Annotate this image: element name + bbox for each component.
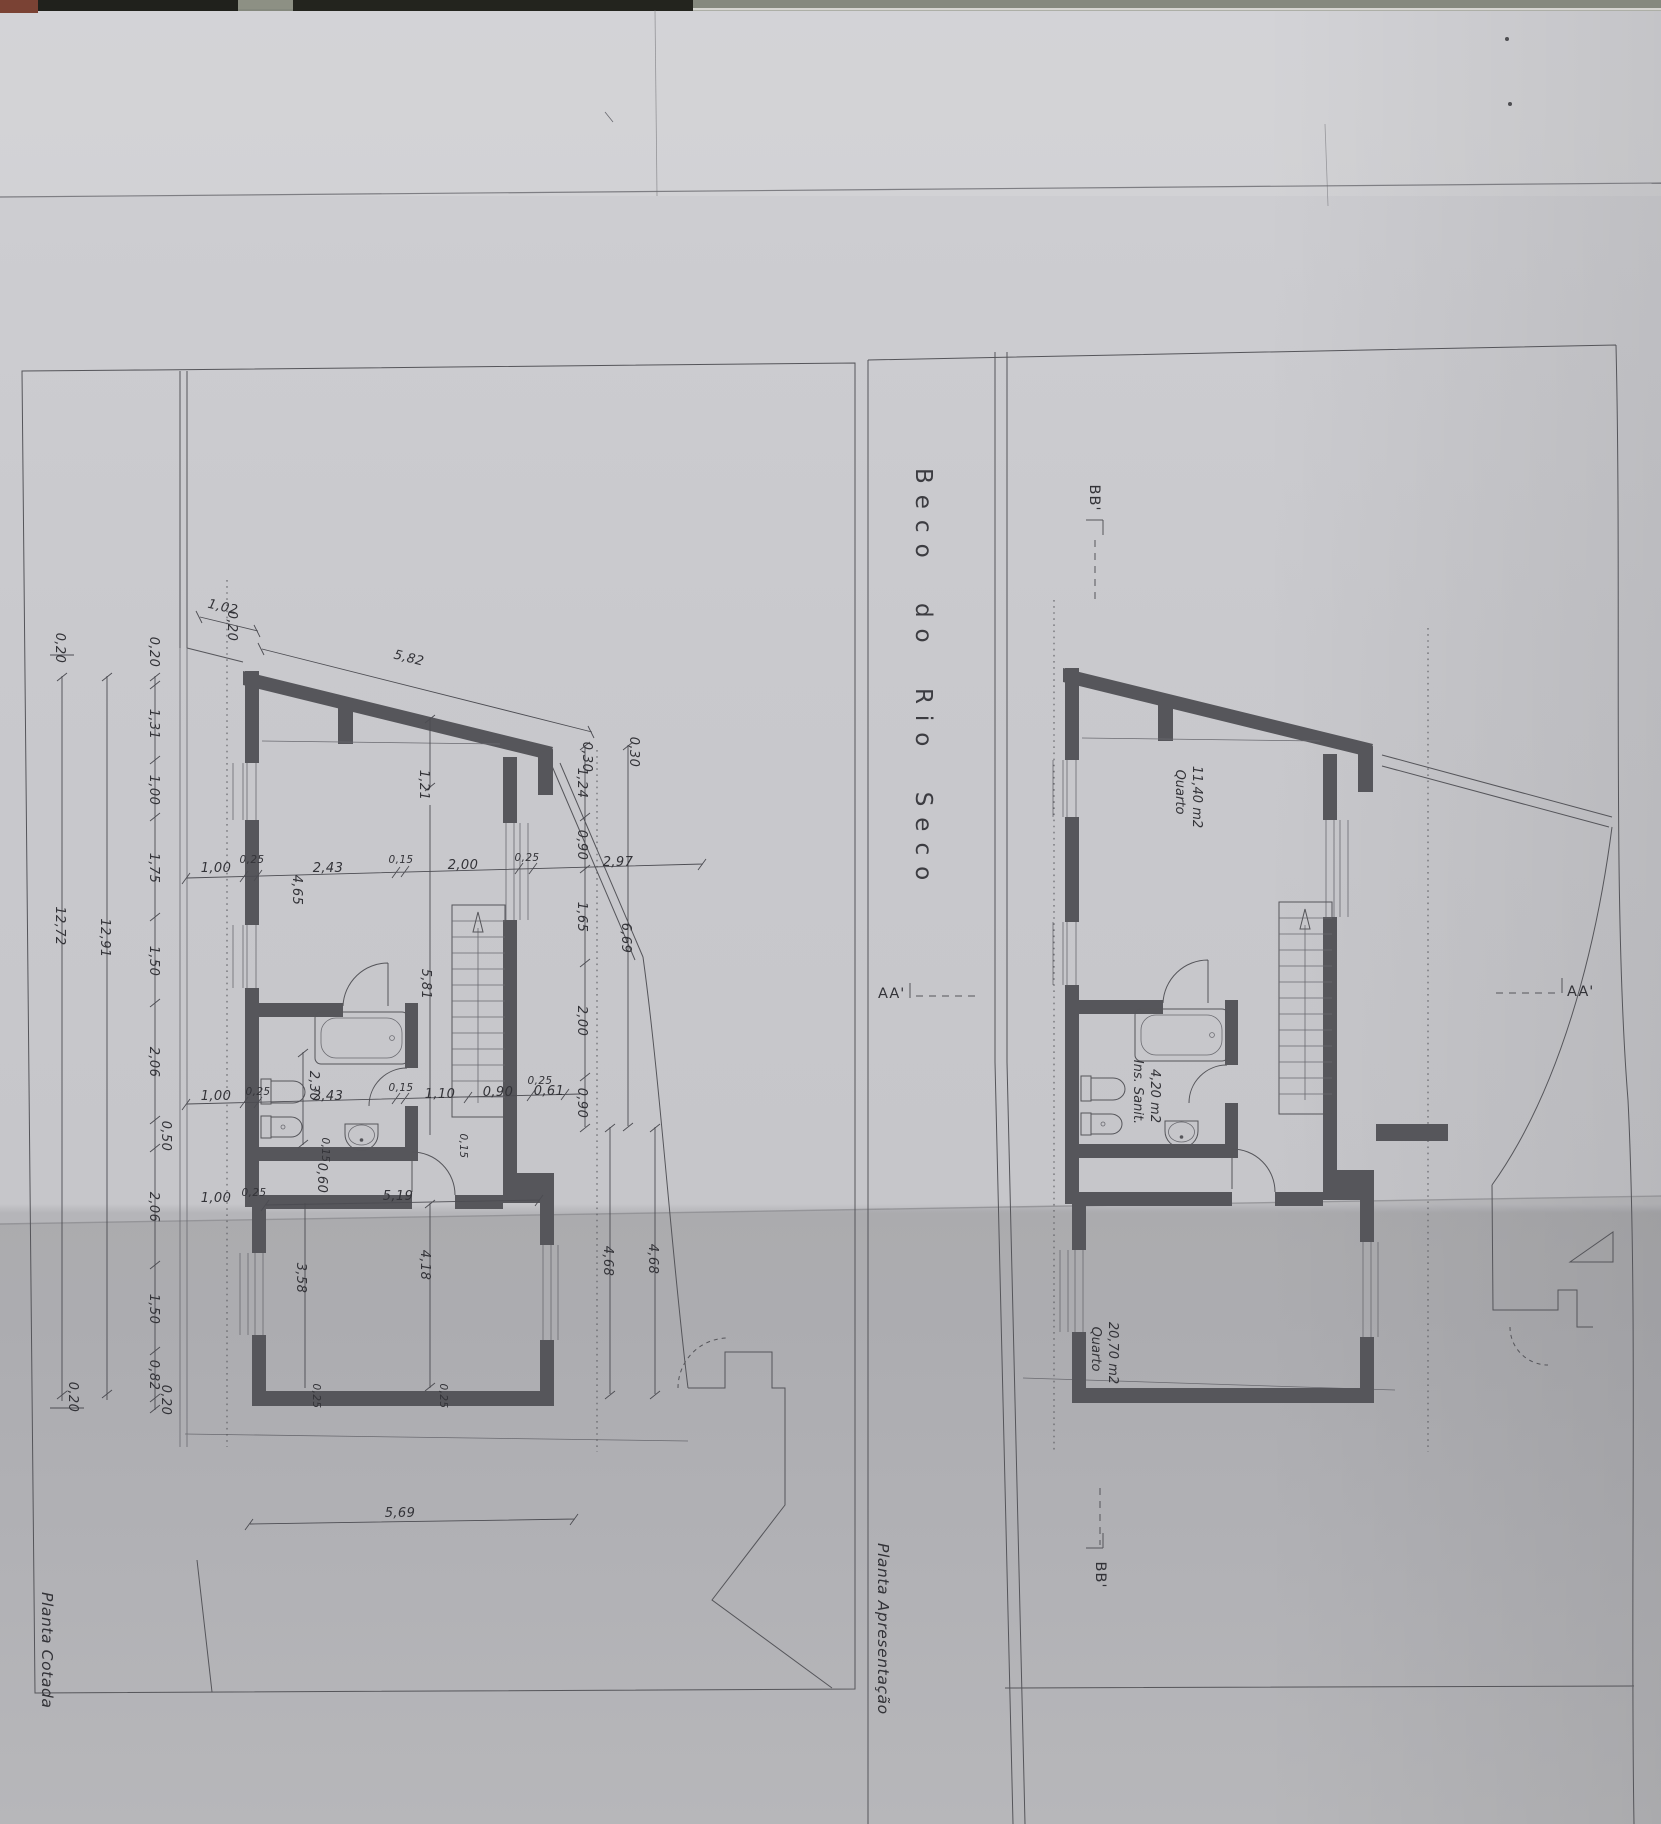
dimension-label: 0,15: [457, 1134, 469, 1159]
room-top-wall: [455, 1195, 503, 1209]
bathroom-right-wall: [405, 1106, 418, 1147]
dimension-label: 5,81: [418, 969, 433, 1000]
bathroom-top-wall: [259, 1003, 343, 1017]
bathroom-top-wall: [1079, 1000, 1163, 1014]
top-right-stub-wall: [1358, 746, 1373, 792]
dimension-label: 0,25: [515, 852, 540, 864]
dimension-label: 0,30: [626, 737, 641, 768]
dimension-label: 2,97: [603, 855, 634, 870]
dimension-label: 2,00: [574, 1006, 589, 1037]
scanned-floorplan-sheet: 0,20 1,31 1,00 1,75 1,50 2,06 0,50 2,06 …: [0, 0, 1661, 1824]
sink-drain: [1180, 1135, 1184, 1139]
room-area: 20,70 m2: [1105, 1322, 1120, 1384]
dimension-label: 0,20: [52, 633, 67, 664]
left-wall: [1065, 985, 1079, 1204]
bottom-wall: [1072, 1388, 1374, 1403]
background-dark-left: [38, 0, 238, 11]
dimension-label: 1,50: [146, 946, 161, 977]
background-gap: [238, 0, 293, 9]
left-wall: [1065, 668, 1079, 760]
dimension-label: 2,00: [448, 858, 479, 873]
background-dark-mid: [293, 0, 693, 11]
dimension-label: 4,18: [417, 1250, 432, 1281]
paper-top-edge-highlight: [693, 8, 1661, 11]
dimension-label: 2,43: [313, 1089, 344, 1104]
paper-speck: [1508, 102, 1512, 106]
dimension-label: 0,90: [574, 830, 589, 861]
dimension-label: 3,58: [293, 1263, 308, 1294]
room-top-wall: [1072, 1192, 1232, 1206]
background-red-object: [0, 0, 38, 13]
dimension-label: 1,10: [425, 1087, 456, 1102]
dimension-label: 0,50: [158, 1121, 173, 1152]
dimension-label: 1,24: [574, 768, 589, 799]
paper-speck: [1505, 37, 1509, 41]
dimension-label: 0,25: [246, 1086, 271, 1098]
dimension-label: 1,00: [146, 775, 161, 806]
dimension-label: 2,06: [146, 1192, 161, 1223]
room-right-wall: [540, 1203, 554, 1245]
dimension-label: 4,68: [645, 1244, 660, 1275]
left-wall: [245, 671, 259, 763]
room-right-wall: [540, 1340, 554, 1406]
dimension-label: 1,00: [201, 1191, 232, 1206]
room-right-wall: [1360, 1200, 1374, 1242]
dimension-label: 0,90: [483, 1085, 514, 1100]
plan-title-cotada: Planta Cotada: [38, 1592, 56, 1709]
upper-right-wall: [1323, 754, 1337, 820]
plan-title-apresentacao: Planta Apresentação: [874, 1543, 892, 1715]
room-right-wall: [1360, 1337, 1374, 1403]
dimension-label: 0,90: [574, 1088, 589, 1119]
dimension-label: 2,06: [146, 1047, 161, 1078]
dimension-label: 1,65: [574, 902, 589, 933]
dimension-label: 0,60: [314, 1163, 329, 1194]
section-label-bb-top: BB': [1086, 485, 1102, 512]
sink-drain: [360, 1138, 364, 1142]
dimension-label: 0,15: [389, 854, 414, 866]
dimension-label: 0,20: [146, 637, 161, 668]
room-name: Ins. Sanit.: [1130, 1060, 1145, 1124]
dimension-label: 0,15: [319, 1138, 331, 1163]
interior-partition-stub: [1158, 697, 1173, 741]
dimension-label: 0,15: [389, 1082, 414, 1094]
dimension-label: 12,91: [97, 918, 112, 957]
room-name: Quarto: [1172, 770, 1187, 815]
dimension-label: 4,65: [289, 875, 304, 906]
room-area: 11,40 m2: [1189, 766, 1204, 828]
dimension-label: 5,19: [383, 1189, 414, 1204]
dimension-label: 1,00: [201, 861, 232, 876]
dimension-label: 0,20: [65, 1382, 80, 1413]
right-edge-shade: [1261, 0, 1661, 1824]
exterior-wall-stub: [1376, 1124, 1448, 1141]
dimension-label: 1,00: [201, 1089, 232, 1104]
section-label-aa-right: AA': [1567, 984, 1594, 1000]
top-right-stub-wall: [538, 749, 553, 795]
section-label-aa-left: AA': [878, 986, 905, 1002]
dimension-label: 0,25: [242, 1187, 267, 1199]
room-area: 4,20 m2: [1147, 1069, 1162, 1123]
dimension-label: 4,68: [600, 1246, 615, 1277]
dimension-label: 0,25: [240, 854, 265, 866]
wc-bottom-wall: [258, 1147, 418, 1161]
section-label-bb-bottom: BB': [1092, 1562, 1108, 1589]
wc-bottom-wall: [1078, 1144, 1238, 1158]
dimension-label: 6,69: [618, 923, 633, 954]
dimension-label: 1,31: [146, 709, 161, 740]
left-wall: [1065, 817, 1079, 922]
dimension-label: 0,25: [437, 1384, 449, 1409]
dimension-label: 1,75: [146, 853, 161, 884]
dimension-label: 2,43: [313, 861, 344, 876]
dimension-label: 5,69: [385, 1506, 416, 1521]
floorplan-drawing: 0,20 1,31 1,00 1,75 1,50 2,06 0,50 2,06 …: [0, 0, 1661, 1824]
dimension-label: 1,21: [416, 770, 431, 801]
dimension-label: 0,25: [310, 1384, 322, 1409]
dimension-label: 0,25: [528, 1075, 553, 1087]
upper-right-wall: [503, 757, 517, 823]
bathroom-right-wall: [1225, 1103, 1238, 1144]
room-name: Quarto: [1088, 1327, 1103, 1372]
dimension-label: 1,50: [146, 1294, 161, 1325]
dimension-label: 0,20: [158, 1385, 173, 1416]
street-label: Beco do Rio Seco: [910, 468, 936, 891]
bathroom-right-wall: [1225, 1000, 1238, 1065]
interior-partition-stub: [338, 700, 353, 744]
bottom-wall: [252, 1391, 554, 1406]
dimension-label: 12,72: [52, 906, 67, 945]
room-top-wall: [1275, 1192, 1323, 1206]
dimension-label: 0,20: [224, 611, 239, 642]
bathroom-right-wall: [405, 1003, 418, 1068]
